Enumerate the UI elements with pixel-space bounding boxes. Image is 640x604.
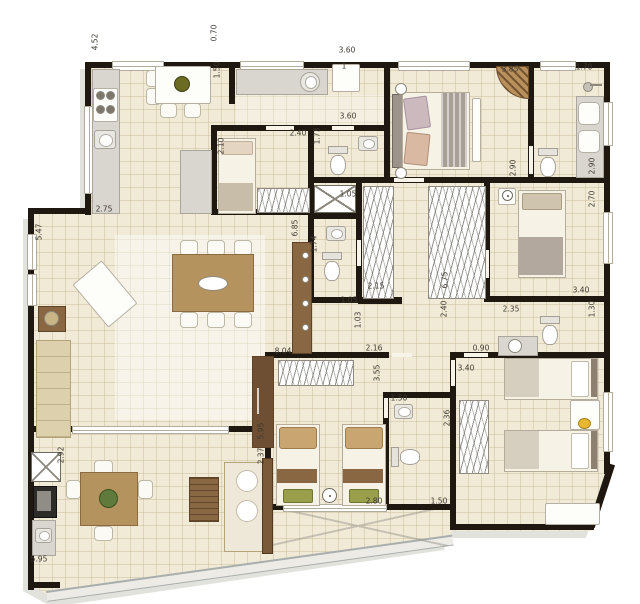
- cabinet-knob: [302, 324, 309, 331]
- maidroom-door: [266, 126, 294, 130]
- wall-bedroom2-bottom: [484, 296, 610, 302]
- duct-shaft: [314, 185, 356, 213]
- balcony-sliding-door: [72, 426, 229, 434]
- balcony-chair: [138, 480, 153, 499]
- kitchen-cabinet: [180, 150, 212, 214]
- dimension-label: 3.60: [339, 46, 356, 54]
- sofa-cushion: [236, 500, 258, 522]
- wall-kidsbath-bottom: [383, 504, 456, 510]
- ceiling-light-icon: [322, 488, 337, 503]
- wall-step: [28, 208, 90, 214]
- cabinet-knob: [302, 252, 309, 259]
- balcony-sink: [35, 528, 52, 543]
- nightstand: [395, 167, 407, 179]
- kitchen-sink: [94, 130, 116, 149]
- lamp-icon: [502, 190, 513, 201]
- bath3-toilet: [540, 316, 560, 346]
- dining-chair: [234, 312, 252, 328]
- wall-kitchen-service: [229, 62, 235, 104]
- kids2-wardrobe: [459, 400, 489, 474]
- burner-icon: [106, 91, 115, 100]
- dimension-label: 4.52: [91, 34, 99, 51]
- balcony-sideboard: [189, 477, 219, 522]
- bath3-sink: [508, 339, 522, 353]
- tv-panel: [252, 356, 274, 448]
- balcony-glazing: [268, 506, 448, 546]
- kids1-door: [392, 353, 412, 357]
- master-bath-door: [529, 146, 533, 174]
- serving-platter-icon: [198, 276, 228, 291]
- buffet-cabinet: [292, 242, 312, 354]
- living-window-2: [27, 274, 37, 306]
- wall-wc1-bottom: [308, 177, 390, 183]
- wall-shaft-bottom: [308, 213, 362, 219]
- bath3-door: [464, 353, 488, 357]
- kids2-door: [451, 360, 455, 386]
- dining-chair: [207, 312, 225, 328]
- cabinet-knob: [302, 276, 309, 283]
- wall-kids1-top: [265, 352, 389, 358]
- closet-wardrobe-right: [428, 186, 486, 299]
- kidsbath-toilet: [391, 447, 421, 467]
- service-wc-sink: [358, 136, 378, 151]
- wall-service-bottom: [211, 125, 390, 131]
- service-wc-door: [332, 126, 354, 130]
- master-window: [398, 61, 470, 71]
- kids2-desk: [545, 503, 600, 525]
- balcony-chair: [66, 480, 81, 499]
- kids1-bed: [276, 424, 320, 506]
- right-window-bath: [603, 102, 613, 146]
- shower-arm-icon: [590, 84, 602, 86]
- nightstand: [395, 83, 407, 95]
- right-window-kids2: [603, 392, 613, 452]
- vanity-sink: [578, 102, 600, 125]
- burner-icon: [96, 105, 105, 114]
- kids2-bed: [504, 358, 598, 400]
- sofa-cushion: [236, 470, 258, 492]
- kidsbath-door: [384, 398, 388, 418]
- dining-chair: [180, 312, 198, 328]
- kidsbath-sink: [394, 404, 413, 419]
- bedroom2-bed: [518, 190, 566, 278]
- closet-wardrobe-left: [363, 186, 394, 299]
- wall-bath2-bottom: [308, 297, 362, 303]
- floor-plan: 4.520.701.503.6013.602.401.732.102.755.4…: [0, 0, 640, 604]
- service-toilet: [328, 146, 348, 176]
- cabinet-knob: [302, 300, 309, 307]
- living-window-1: [27, 234, 37, 270]
- dimension-label: 0.70: [210, 25, 218, 42]
- guest-bath-door: [357, 240, 361, 266]
- bed-bench: [472, 98, 481, 162]
- side-table-decor: [44, 311, 59, 326]
- master-bath-window: [540, 61, 576, 71]
- kids1-bed: [342, 424, 386, 506]
- maid-wardrobe: [257, 188, 310, 213]
- guest-toilet: [322, 252, 342, 282]
- maid-bed: [218, 138, 256, 214]
- burner-icon: [106, 105, 115, 114]
- master-toilet: [538, 148, 558, 178]
- burner-icon: [96, 91, 105, 100]
- balcony-sofa-frame: [262, 458, 273, 554]
- vanity-sink: [578, 130, 600, 153]
- balcony-shaft: [31, 452, 61, 482]
- laundry-sink: [300, 72, 320, 92]
- kids1-wardrobe: [278, 360, 354, 386]
- kitchen-chair: [160, 103, 177, 118]
- living-sofa: [36, 340, 71, 438]
- wall-bottom-left: [28, 582, 60, 588]
- fruit-bowl-icon: [174, 76, 190, 92]
- plant-icon: [99, 489, 118, 508]
- balcony-chair: [94, 526, 113, 541]
- kitchen-chair: [184, 103, 201, 118]
- kids2-bed: [504, 430, 598, 472]
- master-bed: [402, 92, 470, 170]
- tv-panel-handle: [257, 388, 259, 414]
- toy-duck-icon: [578, 418, 591, 429]
- grill-glass: [37, 491, 51, 511]
- wall-kidsbath-top: [383, 392, 455, 398]
- washing-machine: [332, 64, 360, 92]
- right-window-bedroom2: [603, 212, 613, 264]
- guest-bath-sink: [326, 226, 346, 241]
- wall-master-left: [384, 62, 390, 183]
